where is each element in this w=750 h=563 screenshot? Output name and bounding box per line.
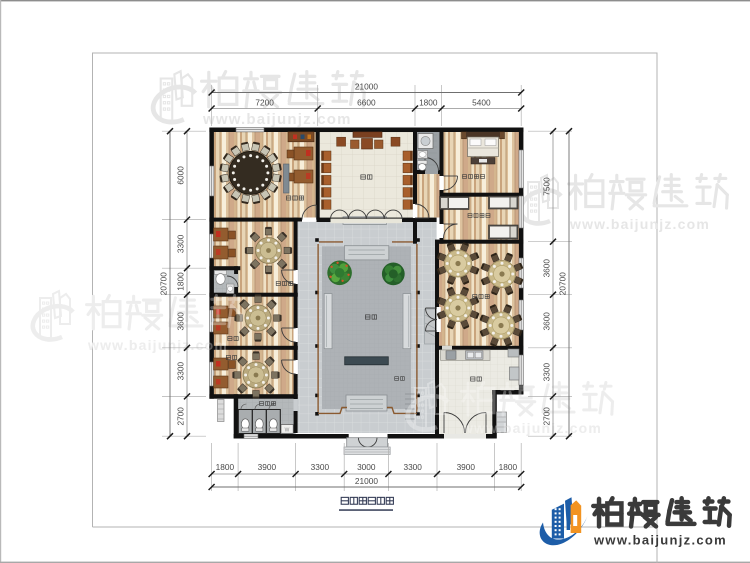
- svg-text:W: W: [285, 427, 290, 433]
- svg-text:www.baijunjz.com: www.baijunjz.com: [202, 111, 352, 128]
- svg-text:3000: 3000: [357, 462, 376, 472]
- svg-text:3600: 3600: [542, 259, 552, 278]
- svg-text:www.baijunjz.com: www.baijunjz.com: [87, 337, 228, 353]
- svg-text:1800: 1800: [216, 462, 235, 472]
- svg-text:5400: 5400: [472, 98, 491, 108]
- svg-text:2700: 2700: [542, 407, 552, 426]
- svg-text:2700: 2700: [176, 407, 186, 426]
- svg-text:3300: 3300: [311, 462, 330, 472]
- svg-text:1800: 1800: [419, 98, 438, 108]
- svg-text:www.baijunjz.com: www.baijunjz.com: [569, 216, 710, 232]
- svg-text:7500: 7500: [542, 177, 552, 196]
- svg-text:6000: 6000: [176, 166, 186, 185]
- svg-text:6600: 6600: [357, 98, 376, 108]
- svg-text:3300: 3300: [176, 361, 186, 380]
- svg-text:21000: 21000: [355, 82, 378, 92]
- svg-text:www.baijunjz.com: www.baijunjz.com: [461, 420, 602, 436]
- svg-text:7200: 7200: [255, 98, 274, 108]
- svg-text:3300: 3300: [542, 362, 552, 381]
- svg-text:1800: 1800: [176, 272, 186, 291]
- svg-text:20700: 20700: [558, 272, 568, 295]
- svg-text:3600: 3600: [176, 312, 186, 331]
- svg-text:3900: 3900: [457, 462, 476, 472]
- svg-text:1800: 1800: [499, 462, 518, 472]
- svg-text:21000: 21000: [355, 476, 378, 486]
- svg-text:3300: 3300: [403, 462, 422, 472]
- svg-text:3900: 3900: [258, 462, 277, 472]
- svg-text:3300: 3300: [176, 234, 186, 253]
- svg-text:www.baijunjz.com: www.baijunjz.com: [593, 533, 727, 548]
- svg-text:20700: 20700: [159, 272, 169, 295]
- svg-text:3600: 3600: [542, 312, 552, 331]
